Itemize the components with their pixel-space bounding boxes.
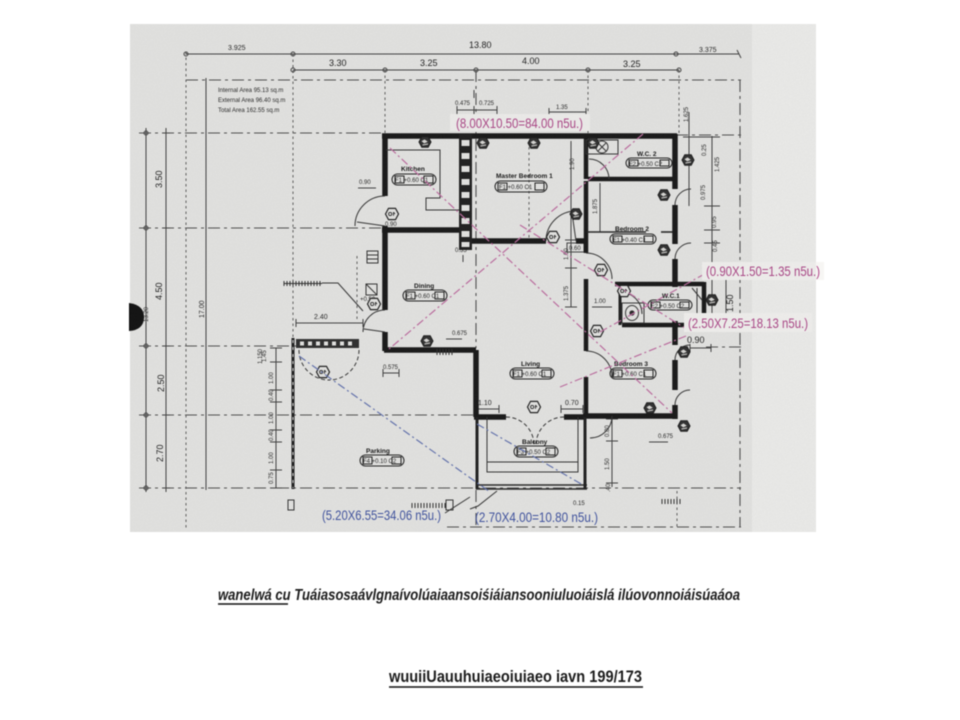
svg-text:wuuiiUauuhuiaeoiuiaeo iavn 199: wuuiiUauuhuiaeoiuiaeo iavn 199/173 <box>388 667 642 686</box>
svg-text:wanelwá cu Tuáiasosaávlgnaívo: wanelwá cu Tuáiasosaávlgnaívolúaiaansoiś… <box>218 587 740 604</box>
